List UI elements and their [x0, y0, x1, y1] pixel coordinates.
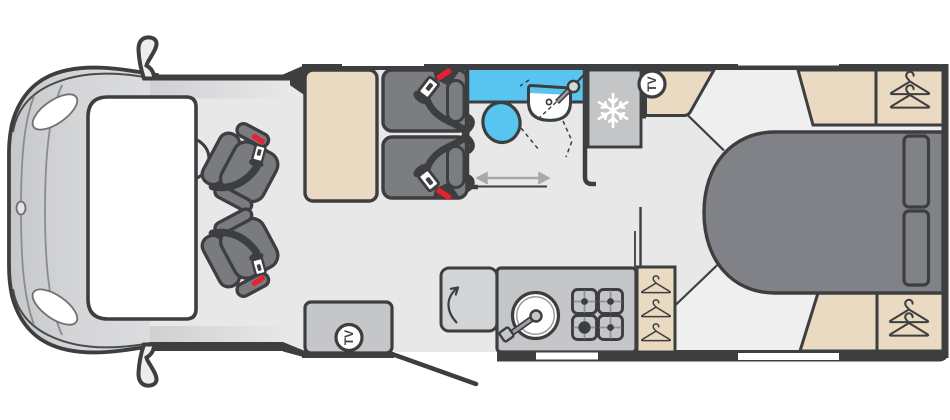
svg-text:TV: TV [342, 330, 356, 345]
svg-text:TV: TV [645, 76, 659, 91]
